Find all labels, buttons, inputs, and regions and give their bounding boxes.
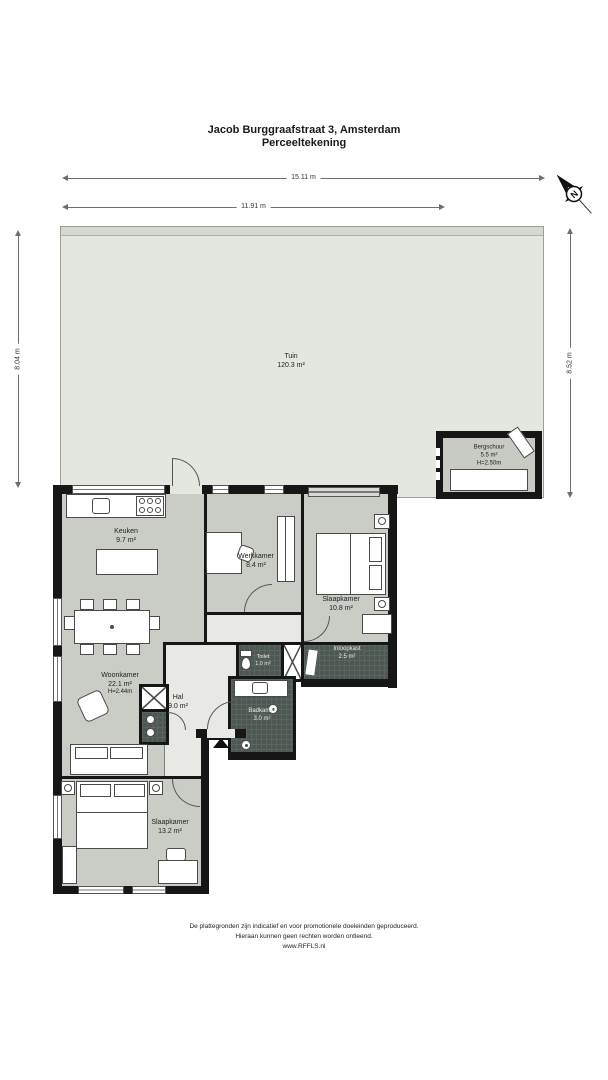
burner-icon [139, 498, 145, 504]
shed-wall-dash [436, 448, 440, 456]
window-slaapkamer-boven [308, 487, 380, 497]
dining-chair [103, 644, 117, 655]
label-inloopkast: Inloopkast2.5 m² [333, 646, 360, 662]
north-compass-icon: N [548, 166, 600, 222]
window-woonkamer-1 [53, 598, 62, 646]
sofa-cushion [110, 747, 143, 759]
label-toilet: Toilet1.0 m² [255, 654, 271, 668]
shower-dot [245, 744, 248, 747]
entrance-arrow-icon [213, 738, 229, 748]
toilet-bowl-icon [241, 657, 251, 670]
garden-label: Tuin120.3 m² [277, 352, 305, 370]
dimension-right: 8.52 m [564, 228, 576, 498]
dryer-icon [146, 728, 155, 737]
dimension-right-label: 8.52 m [567, 347, 574, 378]
dining-chair [103, 599, 117, 610]
dining-chair [126, 599, 140, 610]
dimension-inner: 11.91 m [62, 201, 445, 213]
burner-icon [155, 498, 161, 504]
closet-divider [285, 517, 286, 581]
label-keuken: Keuken9.7 m² [114, 527, 138, 545]
shed-wall-dash [436, 472, 440, 480]
hal-landing [204, 612, 304, 645]
dimension-left-label: 8.04 m [15, 343, 22, 374]
footer-url: www.RFFLS.nl [0, 942, 608, 952]
lamp-icon [378, 517, 386, 525]
wall-bedroom-right [201, 737, 209, 894]
footer-line-1: De plattegronden zijn indicatief en voor… [0, 922, 608, 932]
utility-closet [139, 709, 169, 745]
lamp-icon [152, 784, 160, 792]
sofa-cushion [75, 747, 108, 759]
washer-icon [146, 715, 155, 724]
dimension-left: 8.04 m [12, 230, 24, 488]
window-werkkamer-2 [264, 485, 284, 494]
dimension-top: 15.11 m [62, 172, 545, 184]
wardrobe [62, 846, 77, 884]
pillow [114, 784, 145, 797]
kitchen-island [96, 549, 158, 575]
burner-icon [147, 507, 153, 513]
label-slaapkamer-boven: Slaapkamer10.8 m² [322, 595, 359, 613]
dining-chair [80, 644, 94, 655]
toilet-tank [240, 650, 252, 657]
wall-bathroom-bottom [228, 752, 296, 760]
desk-chair-slaapkamer [166, 848, 186, 861]
shed-label: Bergschuur5.5 m²H=2.50m [474, 444, 505, 467]
kitchen-sink [92, 498, 110, 514]
lamp-icon [64, 784, 72, 792]
window-slaapkamer-onder-1 [78, 886, 124, 894]
window-woonkamer-2 [53, 656, 62, 702]
garden-door-opening [170, 485, 202, 494]
burner-icon [155, 507, 161, 513]
dimension-inner-label: 11.91 m [236, 201, 271, 213]
bed-fold-line [350, 534, 351, 594]
sink-basin [252, 682, 268, 694]
closet-x-icon [142, 687, 166, 709]
desk-slaapkamer [158, 860, 198, 884]
lamp-icon [378, 600, 386, 608]
dining-chair [80, 599, 94, 610]
dimension-top-label: 15.11 m [286, 172, 321, 184]
dining-chair [126, 644, 140, 655]
pillow [369, 565, 382, 590]
pillow [80, 784, 111, 797]
burner-icon [147, 498, 153, 504]
footer-disclaimer: De plattegronden zijn indicatief en voor… [0, 922, 608, 951]
shed-wall-dash [436, 460, 440, 468]
closet-werkkamer [277, 516, 295, 582]
table-center-dot [110, 625, 114, 629]
burner-icon [139, 507, 145, 513]
window-slaapkamer-onder-side [53, 795, 62, 839]
window-slaapkamer-onder-2 [132, 886, 166, 894]
label-slaapkamer-onder: Slaapkamer13.2 m² [151, 818, 188, 836]
label-hal: Hal9.0 m² [168, 693, 188, 711]
wall-inloopkast-bottom [301, 679, 396, 687]
entrance-opening [207, 729, 235, 738]
dining-chair [149, 616, 160, 630]
window-kitchen [72, 485, 165, 494]
footer-line-2: Hieraan kunnen geen rechten worden ontle… [0, 932, 608, 942]
dresser [362, 614, 392, 634]
shed-storage [450, 469, 528, 491]
meter-closet [139, 684, 169, 712]
pillow [369, 537, 382, 562]
closet-x-icon [284, 645, 301, 679]
window-werkkamer-1 [212, 485, 229, 494]
page-title: Jacob Burggraafstraat 3, Amsterdam [0, 124, 608, 136]
label-werkkamer: Werkkamer8.4 m² [238, 552, 274, 570]
wall-bottom [53, 886, 209, 894]
floorplan-page: Jacob Burggraafstraat 3, Amsterdam Perce… [0, 0, 608, 1080]
label-badkamer: Badkamer3.0 m² [248, 708, 275, 724]
bed-fold-line [77, 812, 147, 813]
page-subtitle: Perceeltekening [0, 137, 608, 149]
garden-door-leaf [172, 458, 173, 486]
label-woonkamer: Woonkamer22.1 m² H=2.44m [101, 671, 139, 697]
garden-hedge [61, 227, 543, 236]
